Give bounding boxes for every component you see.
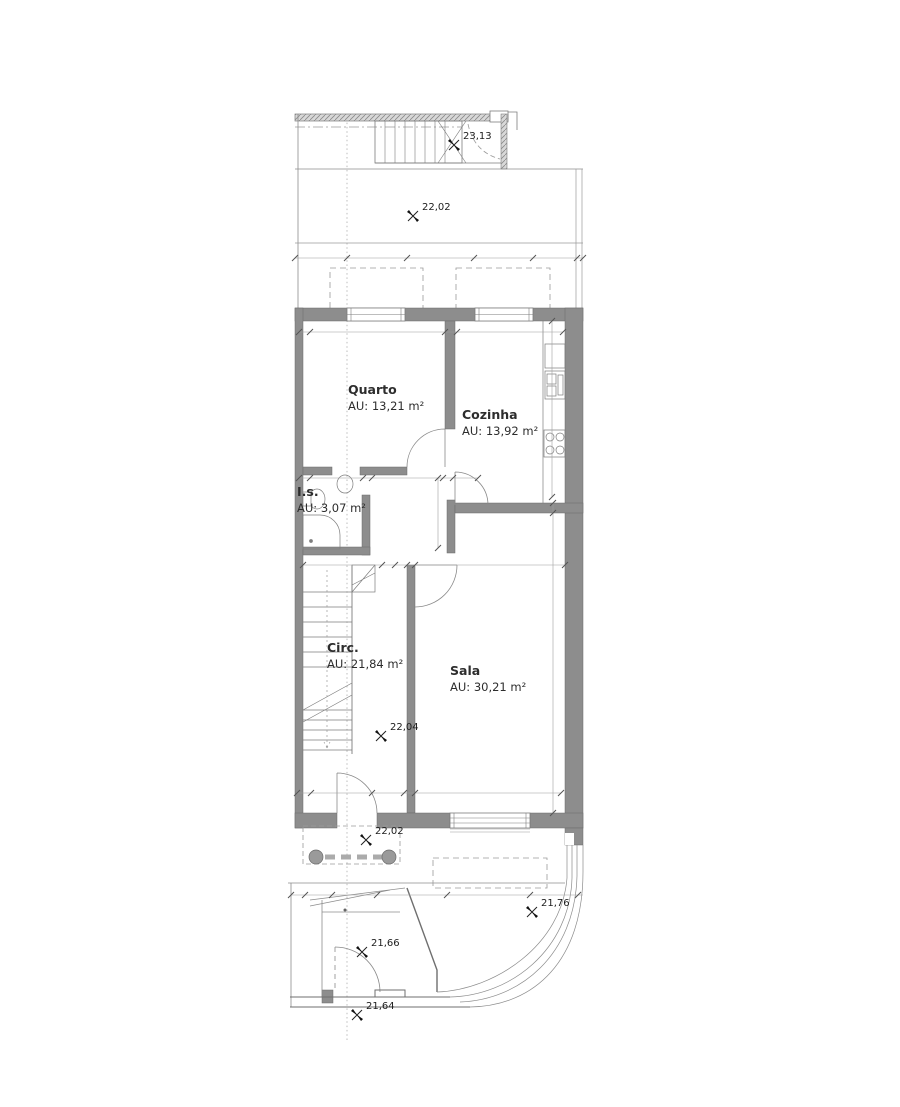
room-label: I.s. AU: 3,07 m² xyxy=(297,484,366,515)
level-marker: 21,64 xyxy=(366,1001,395,1012)
level-marker-icon xyxy=(447,138,461,152)
shower xyxy=(303,515,340,549)
level-value: 22,04 xyxy=(390,722,419,733)
entrance-yard xyxy=(288,845,583,1007)
room-name: Sala xyxy=(450,663,526,678)
dimension-lines xyxy=(288,255,586,898)
room-area: AU: 3,07 m² xyxy=(297,501,366,515)
kitchen-fixtures xyxy=(543,321,565,503)
level-marker-icon xyxy=(406,209,420,223)
level-marker-icon xyxy=(350,1008,364,1022)
room-name: Circ. xyxy=(327,640,403,655)
room-label: Quarto AU: 13,21 m² xyxy=(348,382,424,413)
room-area: AU: 21,84 m² xyxy=(327,657,403,671)
room-area: AU: 13,92 m² xyxy=(462,424,538,438)
reference-lines xyxy=(295,114,462,1040)
level-marker: 22,02 xyxy=(422,202,451,213)
room-label: Sala AU: 30,21 m² xyxy=(450,663,526,694)
room-area: AU: 13,21 m² xyxy=(348,399,424,413)
level-marker-icon xyxy=(359,833,373,847)
room-name: Cozinha xyxy=(462,407,538,422)
level-value: 23,13 xyxy=(463,131,492,142)
level-value: 21,76 xyxy=(541,898,570,909)
level-marker: 23,13 xyxy=(463,131,492,142)
room-name: I.s. xyxy=(297,484,366,499)
room-label: Cozinha AU: 13,92 m² xyxy=(462,407,538,438)
level-marker-icon xyxy=(374,729,388,743)
room-label: Circ. AU: 21,84 m² xyxy=(327,640,403,671)
room-area: AU: 30,21 m² xyxy=(450,680,526,694)
floor-plan-drawing xyxy=(0,0,900,1107)
level-value: 21,64 xyxy=(366,1001,395,1012)
level-marker: 22,04 xyxy=(390,722,419,733)
washing-machine xyxy=(545,344,565,368)
level-marker-icon xyxy=(525,905,539,919)
column xyxy=(309,850,323,864)
level-marker: 21,76 xyxy=(541,898,570,909)
room-name: Quarto xyxy=(348,382,424,397)
column xyxy=(382,850,396,864)
level-value: 22,02 xyxy=(422,202,451,213)
level-value: 21,66 xyxy=(371,938,400,949)
level-marker: 22,02 xyxy=(375,826,404,837)
level-value: 22,02 xyxy=(375,826,404,837)
level-marker: 21,66 xyxy=(371,938,400,949)
floor-plan: Quarto AU: 13,21 m² Cozinha AU: 13,92 m²… xyxy=(0,0,900,1107)
level-marker-icon xyxy=(355,945,369,959)
